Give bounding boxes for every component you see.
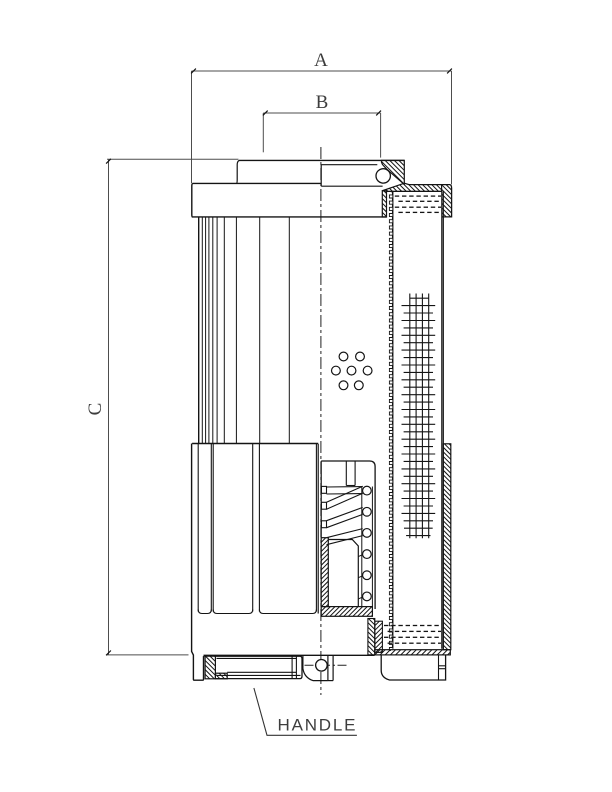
svg-text:B: B [316, 92, 329, 113]
svg-text:C: C [85, 403, 106, 416]
svg-text:HANDLE: HANDLE [278, 716, 358, 735]
svg-text:A: A [314, 50, 328, 71]
